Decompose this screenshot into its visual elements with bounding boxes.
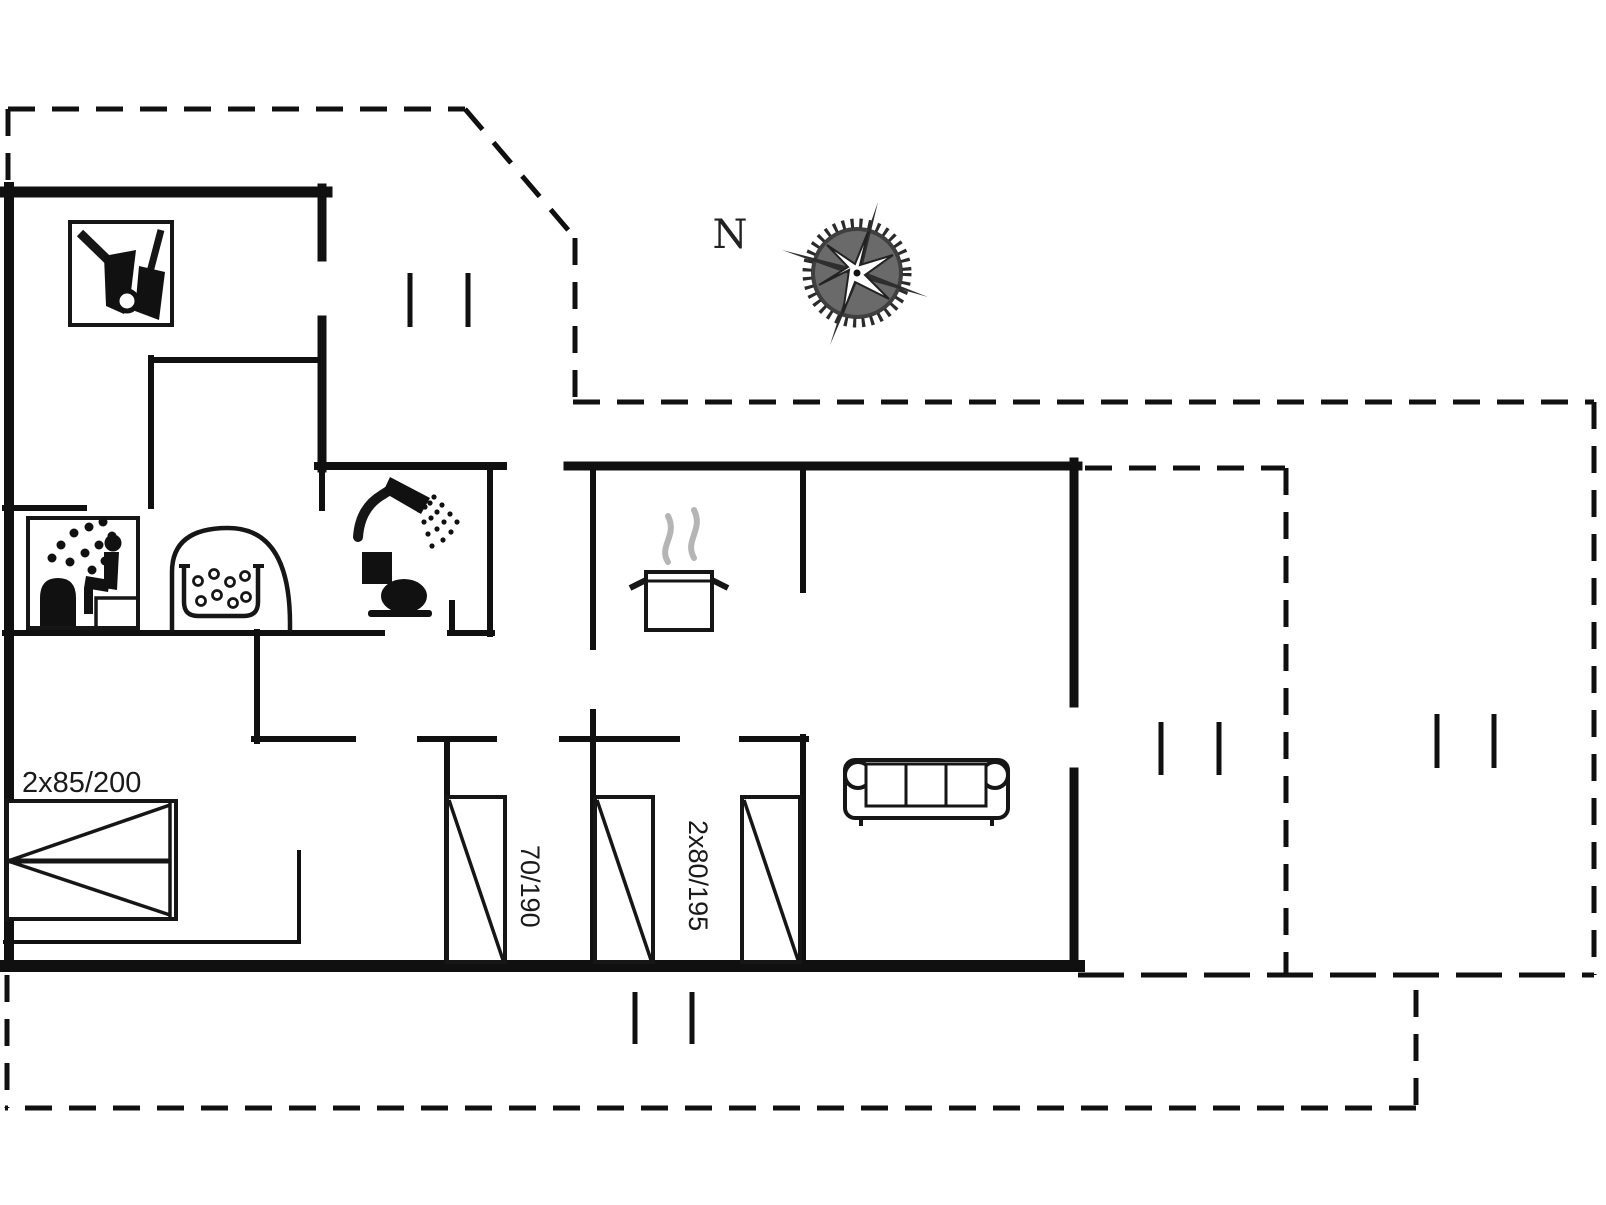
shower-icon [358,477,460,549]
cleaning-equipment-icon [70,222,172,325]
single-bed-icon [595,797,653,962]
toilet-icon [362,552,432,617]
whirlpool-tub-icon [172,528,290,632]
twin-beds-size-label: 2x80/195 [683,820,713,931]
double-bed-size-label: 2x85/200 [22,767,141,799]
sauna-icon [28,518,138,629]
floor-plan-canvas: N 2x85/200 70/190 2x80/195 [0,0,1606,1205]
double-bed-icon [7,801,176,919]
sofa-icon [845,760,1008,826]
single-bed-icon [742,797,800,962]
single-bed-icon [447,797,505,962]
single-bed-size-label: 70/190 [515,845,545,928]
cooking-pot-icon [630,510,728,630]
compass-rose-icon: N [713,202,929,345]
compass-north-label: N [713,212,748,258]
floor-plan: N 2x85/200 70/190 2x80/195 [0,0,1606,1205]
